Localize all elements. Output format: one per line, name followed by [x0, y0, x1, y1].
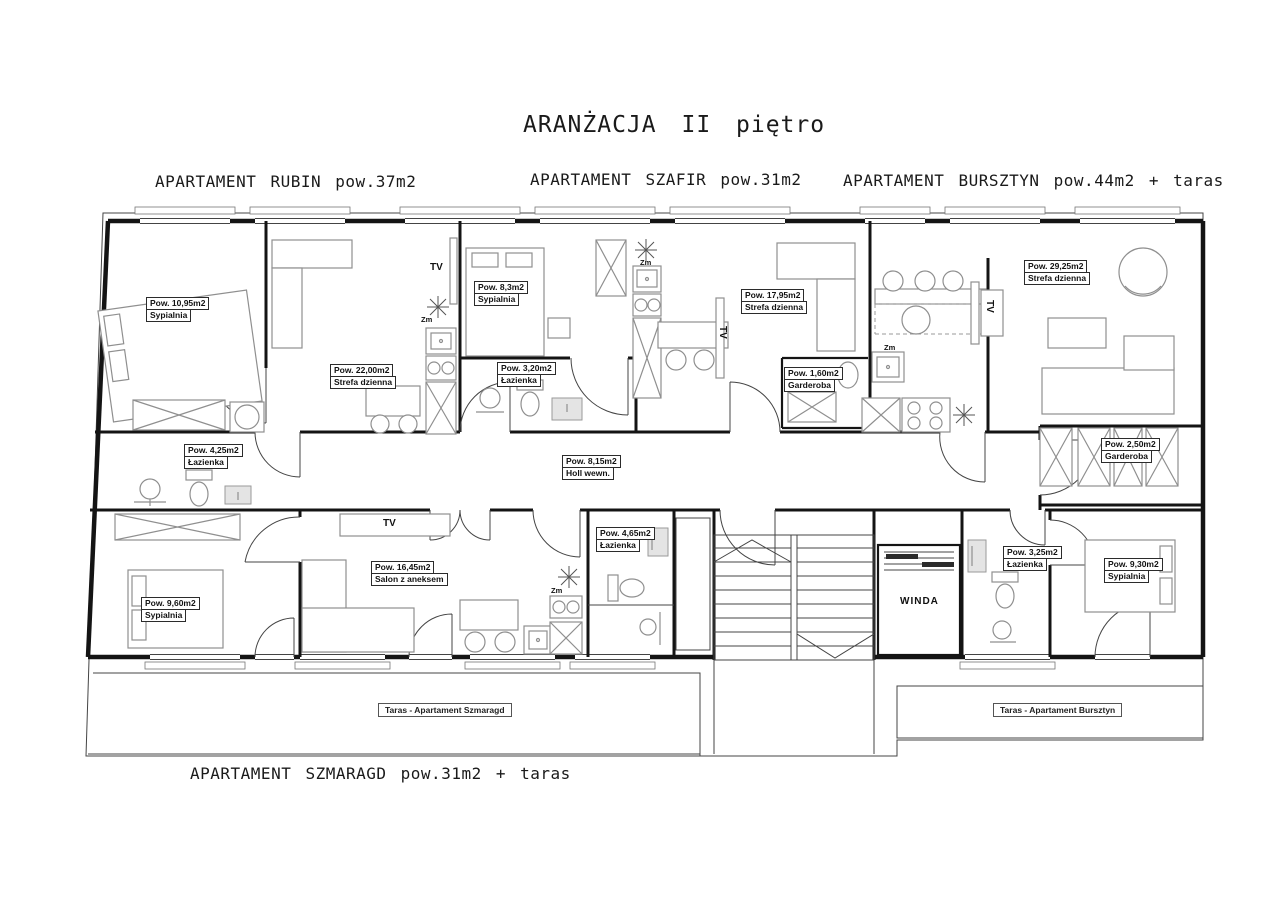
- floor-plan-page: ARANŻACJA II piętro APARTAMENT RUBIN pow…: [0, 0, 1280, 905]
- zm-label-szafir: Zm: [640, 258, 651, 267]
- tv-label-rubin: TV: [430, 262, 443, 273]
- taras-label-bursztyn: Taras - Apartament Bursztyn: [993, 703, 1122, 717]
- apartment-label-bursztyn: APARTAMENT BURSZTYN pow.44m2 + taras: [843, 171, 1224, 190]
- room-label-bursztyn-strefa: Pow. 29,25m2Strefa dzienna: [1024, 260, 1090, 285]
- room-label-szafir-lazienka: Pow. 3,20m2Łazienka: [497, 362, 556, 387]
- taras-label-szmaragd: Taras - Apartament Szmaragd: [378, 703, 512, 717]
- apartment-label-rubin: APARTAMENT RUBIN pow.37m2: [155, 172, 416, 191]
- zm-label-szmaragd: Zm: [551, 586, 562, 595]
- staircase: [714, 535, 874, 660]
- room-label-szmaragd-lazienka: Pow. 4,65m2Łazienka: [596, 527, 655, 552]
- room-label-bursztyn-sypialnia: Pow. 9,30m2Sypialnia: [1104, 558, 1163, 583]
- zm-label-bursztyn: Zm: [884, 343, 895, 352]
- tv-label-szmaragd: TV: [383, 518, 396, 529]
- room-label-szmaragd-sypialnia: Pow. 9,60m2Sypialnia: [141, 597, 200, 622]
- room-label-rubin-strefa: Pow. 22,00m2Strefa dzienna: [330, 364, 396, 389]
- apartment-label-szafir: APARTAMENT SZAFIR pow.31m2: [530, 170, 801, 189]
- room-label-bursztyn-lazienka: Pow. 3,25m2Łazienka: [1003, 546, 1062, 571]
- tv-label-szafir: TV: [717, 326, 728, 339]
- room-label-rubin-sypialnia: Pow. 10,95m2Sypialnia: [146, 297, 209, 322]
- apartment-label-szmaragd: APARTAMENT SZMARAGD pow.31m2 + taras: [190, 764, 571, 783]
- room-label-rubin-lazienka: Pow. 4,25m2Łazienka: [184, 444, 243, 469]
- room-label-bursztyn-garderoba-2: Pow. 2,50m2Garderoba: [1101, 438, 1160, 463]
- winda-label: WINDA: [900, 596, 939, 607]
- room-label-szafir-strefa: Pow. 17,95m2Strefa dzienna: [741, 289, 807, 314]
- room-label-holl: Pow. 8,15m2Holl wewn.: [562, 455, 621, 480]
- zm-label-rubin: Zm: [421, 315, 432, 324]
- tv-label-bursztyn: TV: [984, 300, 995, 313]
- furniture-rubin: [98, 238, 457, 506]
- room-label-szafir-sypialnia: Pow. 8,3m2Sypialnia: [474, 281, 528, 306]
- room-label-bursztyn-garderoba-1: Pow. 1,60m2Garderoba: [784, 367, 843, 392]
- page-title: ARANŻACJA II piętro: [523, 112, 825, 138]
- room-label-szmaragd-salon: Pow. 16,45m2Salon z aneksem: [371, 561, 448, 586]
